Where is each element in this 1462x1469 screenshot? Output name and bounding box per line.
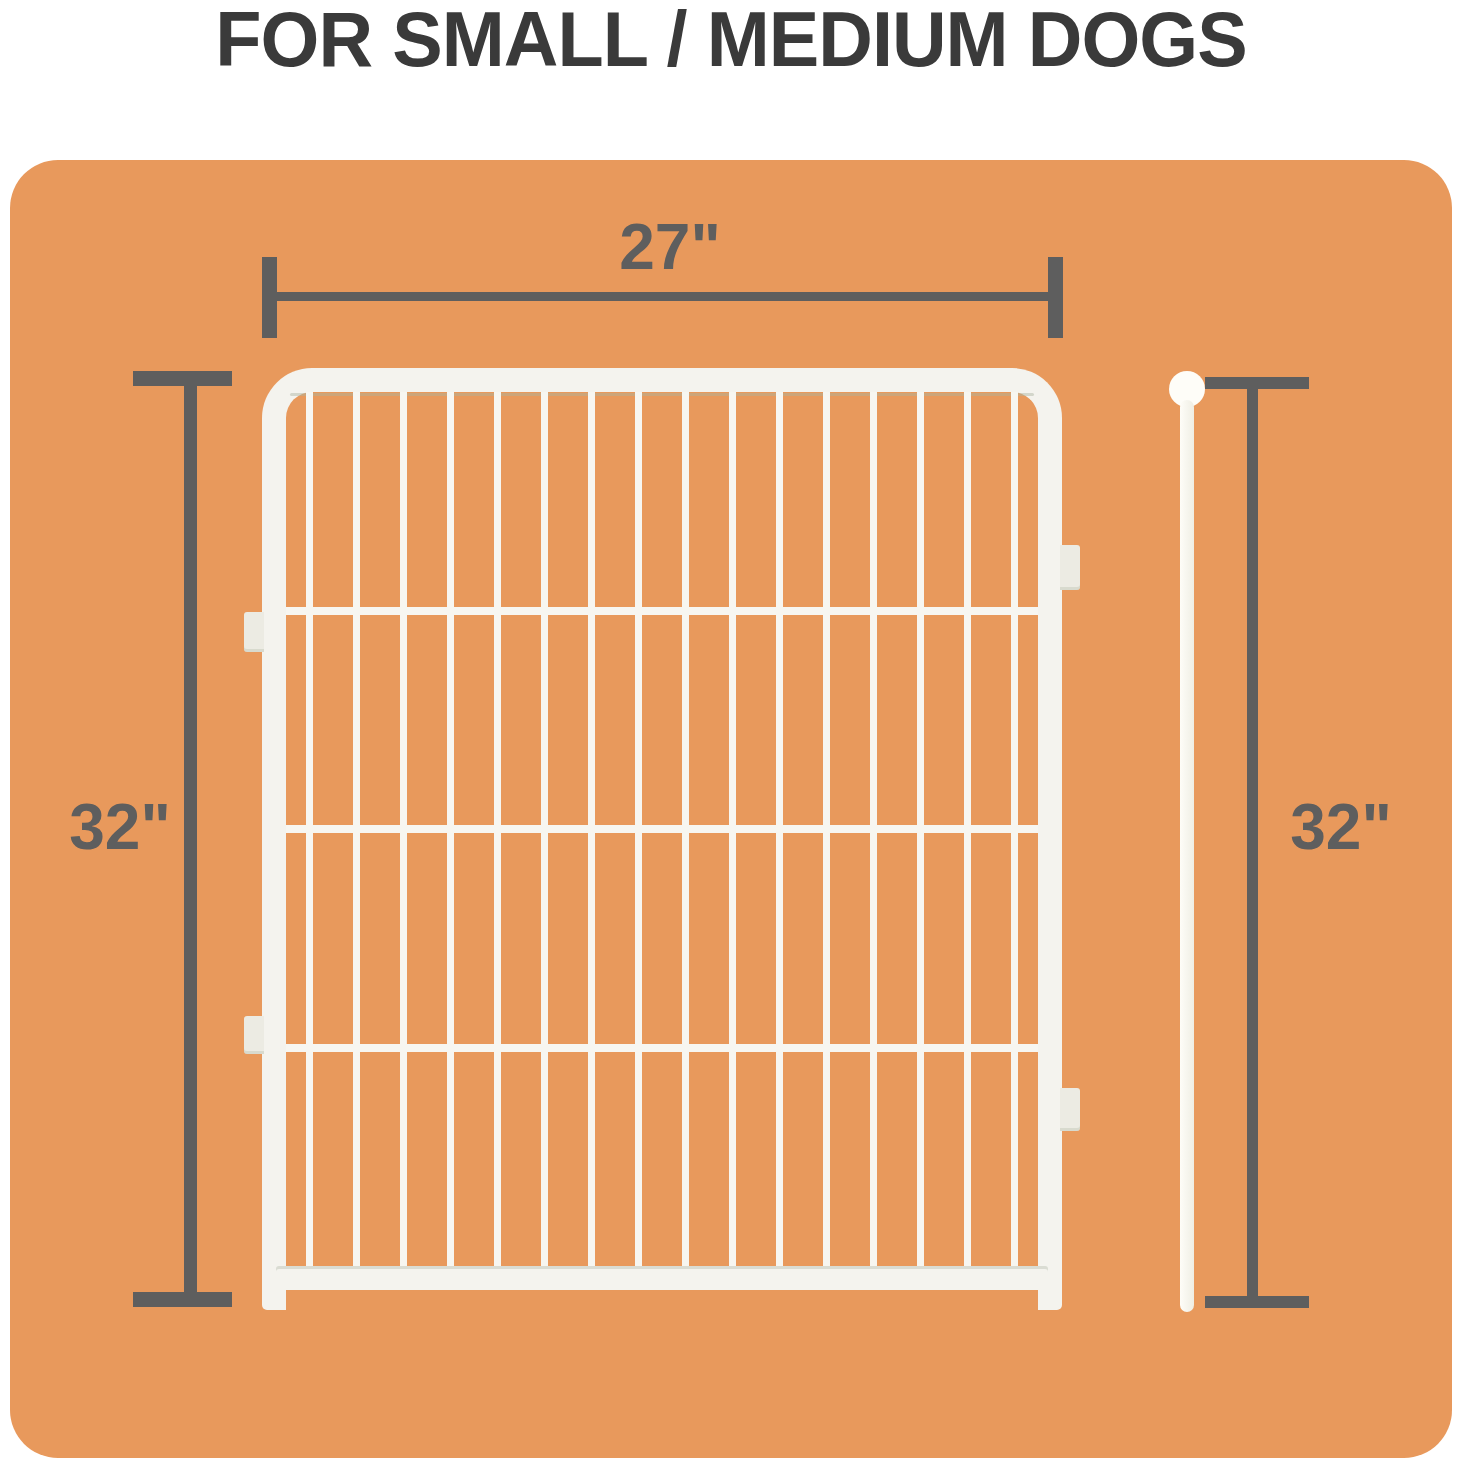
right-upper-connector-tab — [1060, 545, 1080, 590]
panel-horizontal-wire — [286, 825, 1038, 833]
left-height-dimension-top-cap — [133, 371, 232, 386]
width-dimension-right-cap — [1048, 257, 1063, 338]
right-height-dimension-label: 32" — [1271, 790, 1411, 864]
width-dimension-line — [270, 292, 1055, 301]
left-upper-connector-tab — [244, 612, 264, 652]
right-height-dimension-line — [1247, 377, 1258, 1308]
panel-bottom-rail — [276, 1266, 1048, 1290]
panel-horizontal-wires — [286, 392, 1038, 1266]
width-dimension-label: 27" — [570, 210, 770, 284]
right-lower-connector-tab — [1060, 1088, 1080, 1131]
page-title: FOR SMALL / MEDIUM DOGS — [22, 0, 1440, 85]
connector-rod — [1180, 400, 1194, 1312]
left-lower-connector-tab — [244, 1016, 264, 1054]
panel-horizontal-wire — [286, 607, 1038, 615]
panel-horizontal-wire — [286, 1044, 1038, 1052]
product-infographic: FOR SMALL / MEDIUM DOGS 27" 32" 32" — [0, 0, 1462, 1469]
left-height-dimension-bottom-cap — [133, 1292, 232, 1307]
pen-panel-illustration — [262, 368, 1062, 1310]
right-height-dimension-bottom-cap — [1205, 1296, 1309, 1308]
left-height-dimension-label: 32" — [50, 790, 190, 864]
width-dimension-left-cap — [262, 257, 277, 338]
